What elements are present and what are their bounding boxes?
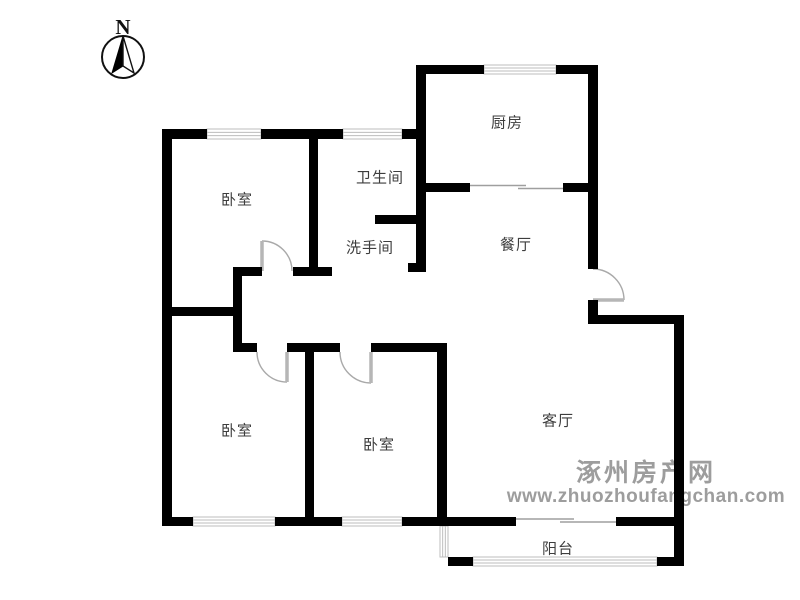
- window: [440, 526, 448, 557]
- wall-segment: [162, 517, 193, 526]
- wall-segment: [233, 343, 257, 352]
- wall-segment: [416, 65, 484, 74]
- window: [343, 129, 402, 139]
- wall-segment: [162, 307, 242, 316]
- watermark-site-name: 涿州房产网: [576, 458, 716, 487]
- wall-segment: [437, 343, 447, 517]
- compass-needle-left: [112, 36, 123, 73]
- watermark: 涿州房产网 www.zhuozhoufangchan.com: [506, 458, 785, 507]
- wall-segment: [402, 517, 516, 526]
- window: [193, 517, 275, 526]
- compass-needle-right: [123, 36, 134, 73]
- wall-segment: [448, 557, 473, 566]
- wall-segment: [275, 517, 342, 526]
- floor-plan-page: 涿州房产网 www.zhuozhoufangchan.com N 卧室卫生间洗手…: [0, 0, 800, 600]
- wall-segment: [416, 65, 426, 272]
- door: [257, 352, 287, 382]
- window: [342, 517, 402, 526]
- door: [340, 352, 371, 383]
- wall-segment: [162, 129, 172, 525]
- window: [473, 557, 657, 566]
- floorplan-svg: 涿州房产网 www.zhuozhoufangchan.com N: [0, 0, 800, 600]
- wall-segment: [657, 557, 684, 566]
- wall-segment: [309, 138, 318, 268]
- wall-segment: [588, 65, 598, 269]
- wall-segment: [674, 315, 684, 565]
- wall-segment: [162, 129, 207, 139]
- door: [593, 269, 624, 300]
- window: [484, 65, 556, 74]
- wall-segment: [408, 263, 426, 272]
- wall-segment: [261, 129, 343, 139]
- wall-segment: [293, 267, 332, 276]
- wall-segment: [588, 315, 684, 324]
- watermark-site-url: www.zhuozhoufangchan.com: [506, 486, 785, 507]
- window: [207, 129, 261, 139]
- north-indicator: N: [102, 15, 144, 78]
- wall-segment: [426, 183, 470, 192]
- wall-segment: [371, 343, 447, 352]
- wall-segment: [563, 183, 588, 192]
- wall-segment: [305, 348, 314, 517]
- wall-segment: [616, 517, 678, 526]
- door: [262, 241, 292, 271]
- wall-segment: [375, 215, 426, 224]
